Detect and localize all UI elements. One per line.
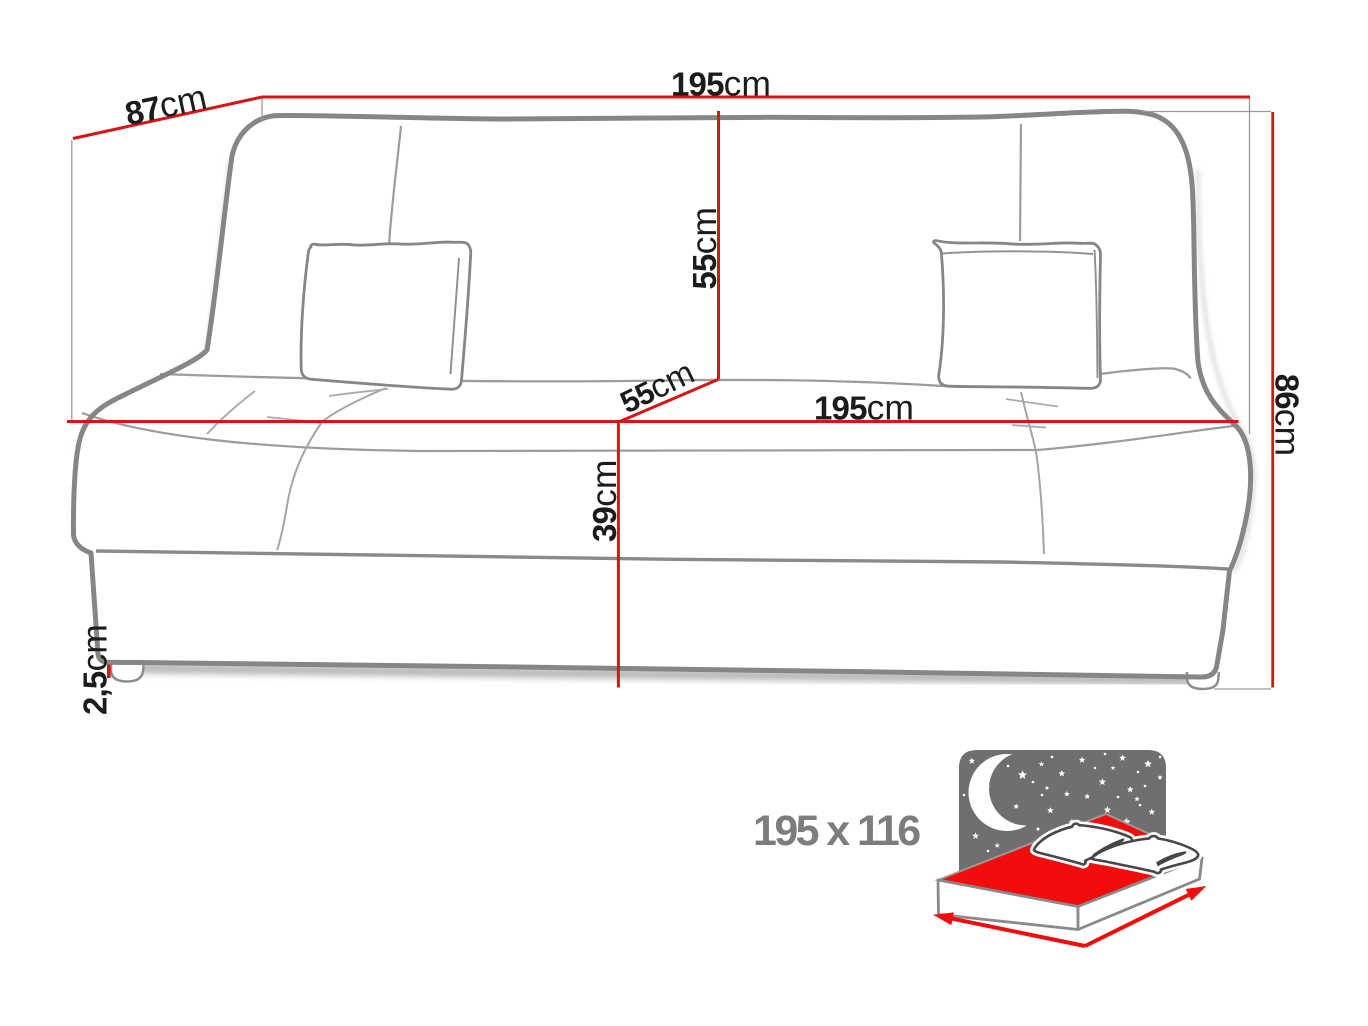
- svg-text:195cm: 195cm: [814, 388, 914, 428]
- svg-text:2,5cm: 2,5cm: [75, 624, 115, 715]
- svg-text:195 x 116: 195 x 116: [753, 807, 920, 855]
- svg-text:39cm: 39cm: [584, 460, 624, 542]
- svg-text:86cm: 86cm: [1268, 374, 1308, 456]
- svg-text:195cm: 195cm: [671, 64, 771, 104]
- svg-text:55cm: 55cm: [684, 207, 724, 289]
